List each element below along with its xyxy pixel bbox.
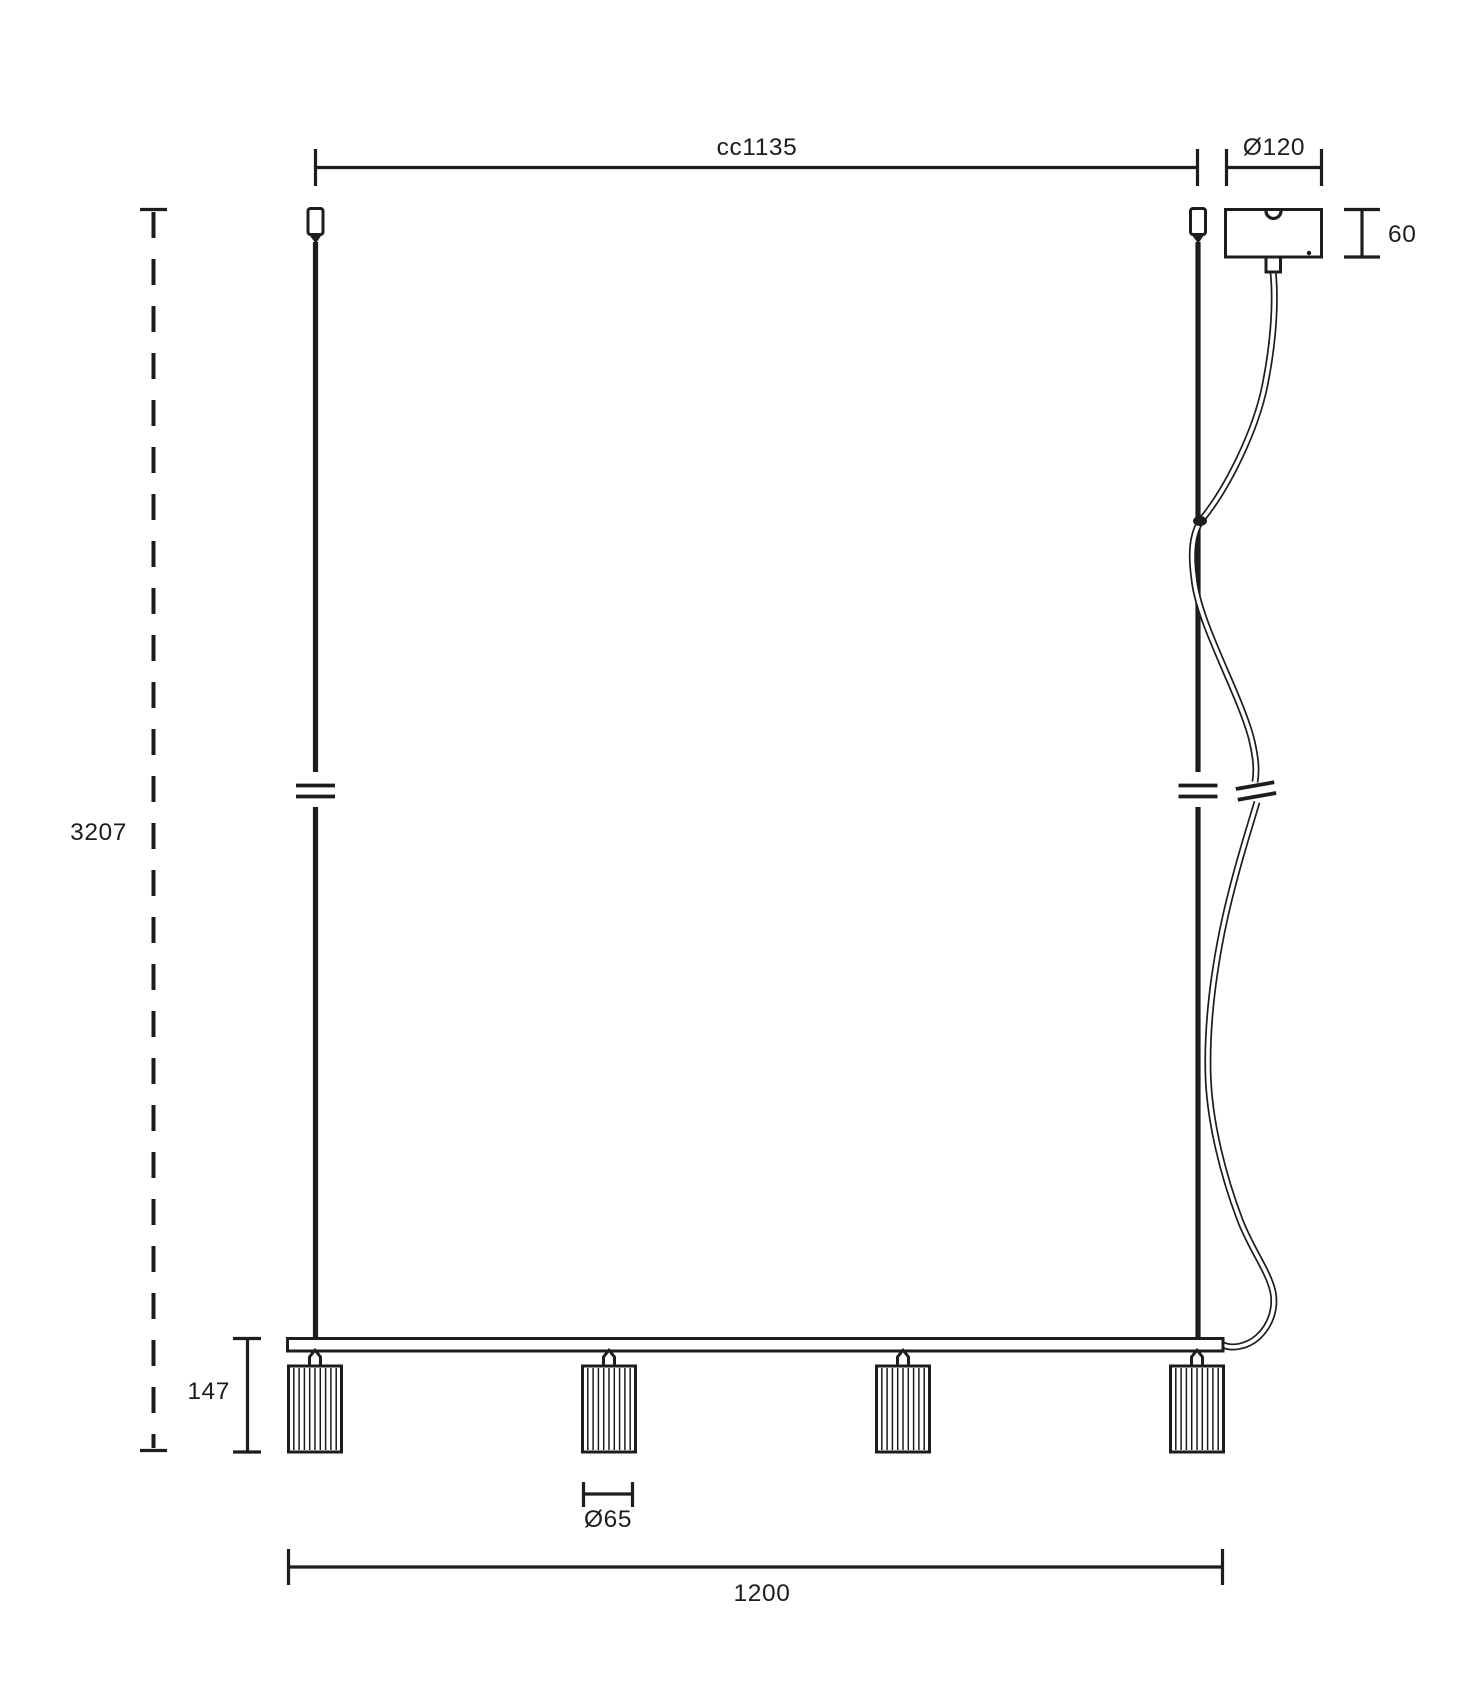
cc-label: cc1135 [717,134,798,161]
canopy-diameter-dimension: Ø120 [1227,134,1322,186]
shade-drop-dimension: 147 [187,1339,261,1453]
canopy-cable-gland [1266,257,1281,272]
overall-height-dimension: 3207 [70,210,167,1451]
canopy-body [1226,210,1322,258]
shade-drop-label: 147 [187,1378,230,1405]
fixture-length-label: 1200 [734,1580,791,1607]
canopy-height-label: 60 [1388,221,1416,248]
rod-top-fitting [308,209,323,244]
lamp-shade [877,1366,930,1452]
canopy [1226,210,1322,273]
lamp-shade [583,1366,636,1452]
fixture-bar [288,1339,1224,1352]
power-cable-lower [1208,802,1274,1347]
shade-diameter-label: Ø65 [584,1506,632,1533]
overall-height-label: 3207 [70,819,127,846]
lamp-shade [1171,1366,1224,1452]
canopy-height-dimension: 60 [1344,210,1416,258]
power-cable-upper [1192,271,1274,782]
canopy-diameter-label: Ø120 [1243,134,1305,161]
technical-drawing: 3207 cc1135 Ø120 60 147 Ø65 [0,0,1480,1708]
suspension-rod-left [296,209,335,1340]
fixture-length-dimension: 1200 [288,1549,1223,1607]
cable-clip [1193,516,1207,526]
rod-top-fitting [1191,209,1206,244]
suspension-rod-right [1179,209,1218,1340]
cable-break-mark [1236,782,1276,800]
canopy-screw [1307,251,1311,255]
shade-diameter-dimension: Ø65 [583,1482,633,1533]
lamp-shade [289,1366,342,1452]
rod-break-mark [296,786,335,797]
cc-dimension: cc1135 [315,134,1198,186]
rod-break-mark [1179,786,1218,797]
